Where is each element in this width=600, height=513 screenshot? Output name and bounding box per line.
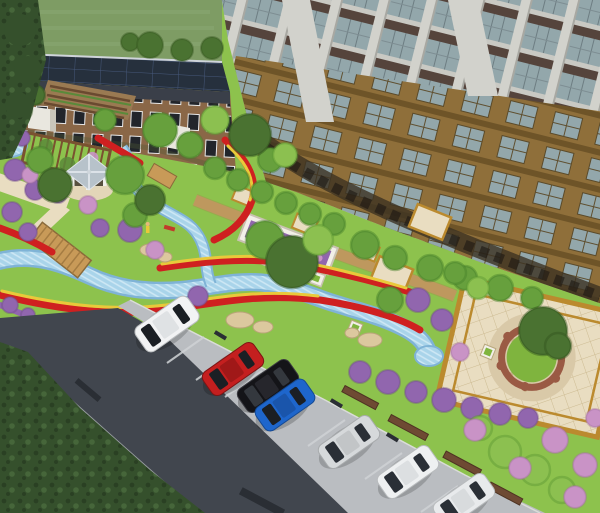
rendering-viewport <box>0 0 600 513</box>
stream-pool <box>415 346 443 366</box>
rendering-canvas <box>0 0 600 513</box>
person-figure <box>146 226 150 233</box>
